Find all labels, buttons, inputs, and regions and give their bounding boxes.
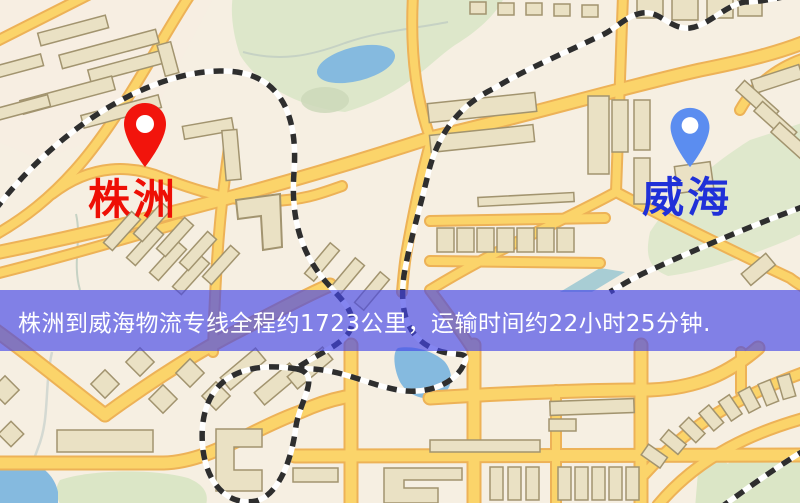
map-pin-icon [668, 106, 712, 169]
origin-pin[interactable] [122, 101, 168, 169]
destination-label: 威海 [642, 177, 732, 219]
map[interactable]: 株洲 威海 株洲到威海物流专线全程约1723公里，运输时间约22小时25分钟. [0, 0, 800, 503]
map-pin-icon [122, 101, 168, 169]
route-info-banner: 株洲到威海物流专线全程约1723公里，运输时间约22小时25分钟. [0, 290, 800, 351]
route-info-text: 株洲到威海物流专线全程约1723公里，运输时间约22小时25分钟. [0, 304, 711, 338]
map-tiles [0, 0, 800, 503]
origin-label: 株洲 [88, 179, 178, 221]
destination-pin[interactable] [668, 106, 712, 169]
